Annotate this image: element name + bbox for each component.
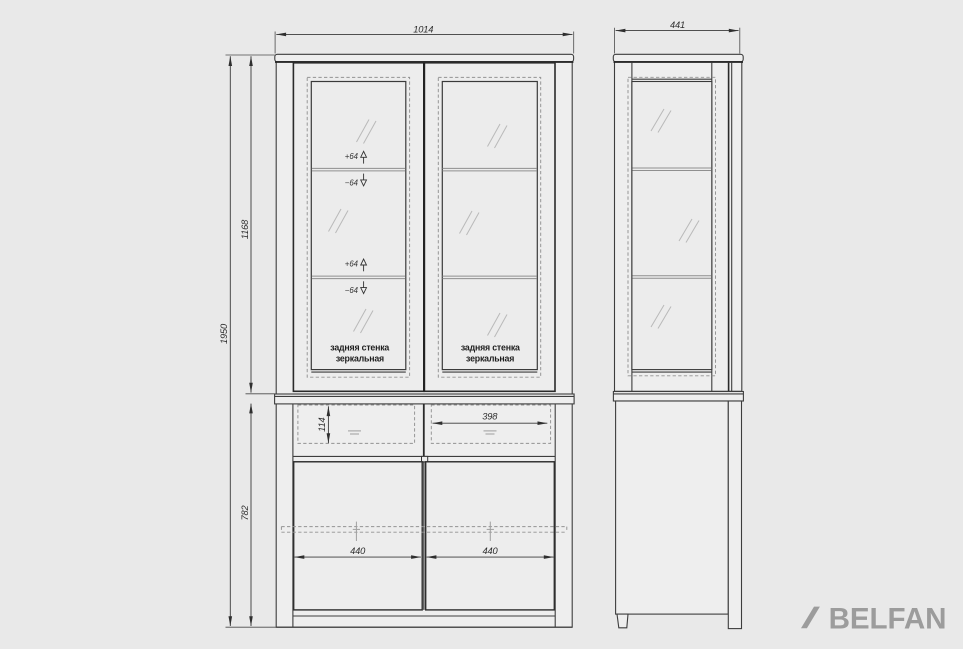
svg-text:+64: +64 xyxy=(345,260,359,269)
svg-text:1168: 1168 xyxy=(240,219,250,239)
svg-text:−64: −64 xyxy=(345,286,359,295)
svg-text:задняя стенка: задняя стенка xyxy=(461,343,520,353)
svg-text:440: 440 xyxy=(482,546,498,556)
svg-text:114: 114 xyxy=(317,418,327,432)
svg-text:−64: −64 xyxy=(345,179,359,188)
svg-text:441: 441 xyxy=(670,20,685,30)
svg-text:задняя стенка: задняя стенка xyxy=(330,343,389,353)
svg-text:782: 782 xyxy=(240,504,250,520)
svg-text:зеркальная: зеркальная xyxy=(466,353,514,363)
svg-text:440: 440 xyxy=(350,546,366,556)
svg-text:398: 398 xyxy=(482,412,498,422)
svg-text:1950: 1950 xyxy=(219,323,229,344)
svg-text:1014: 1014 xyxy=(413,24,433,34)
svg-text:BELFAN: BELFAN xyxy=(829,602,947,635)
svg-text:+64: +64 xyxy=(345,152,359,161)
svg-text:зеркальная: зеркальная xyxy=(336,353,384,363)
